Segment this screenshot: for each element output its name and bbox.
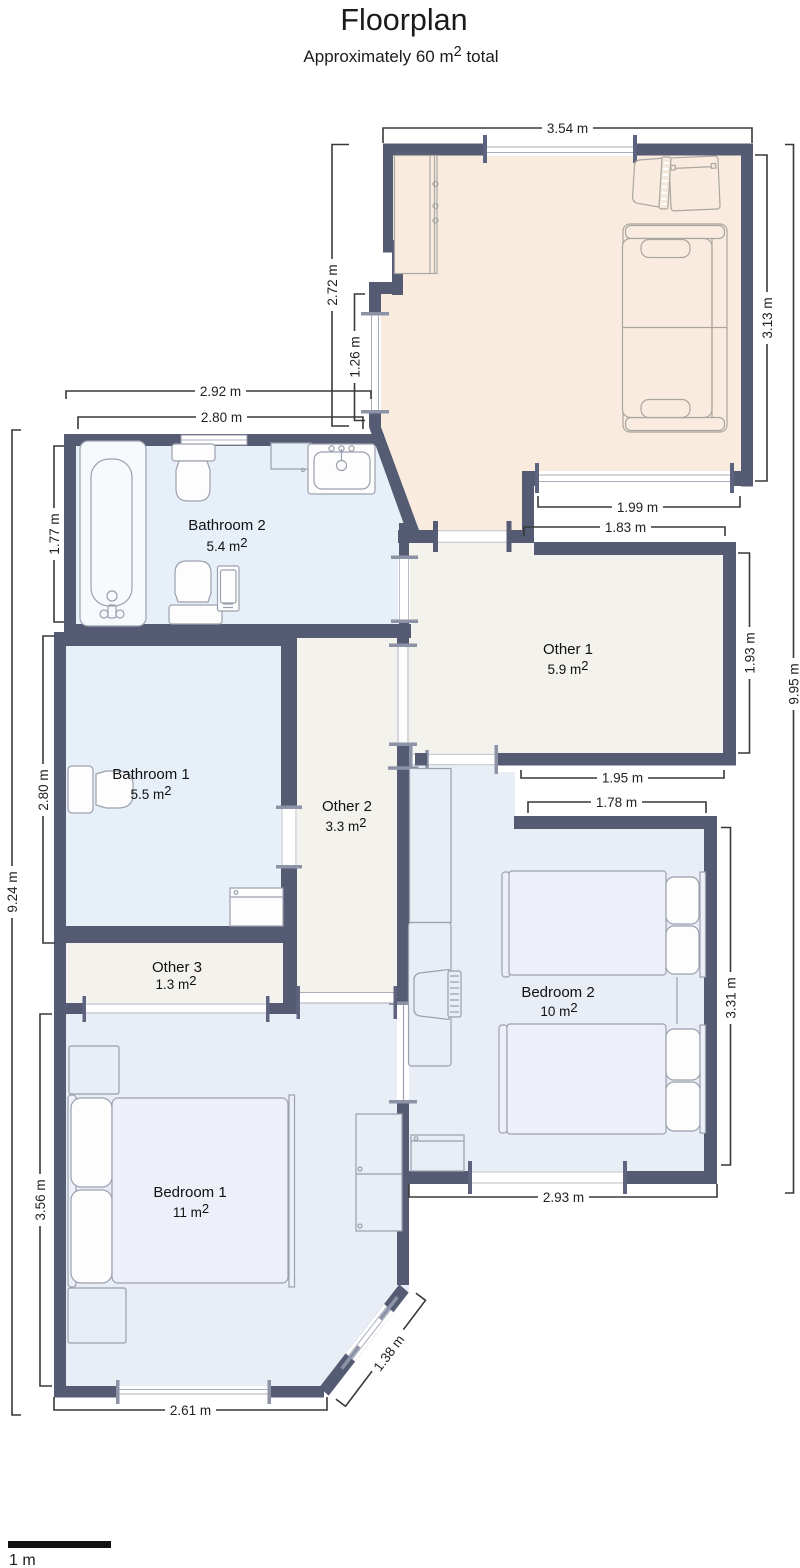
- svg-text:Bathroom 2: Bathroom 2: [188, 517, 266, 534]
- svg-text:Floorplan: Floorplan: [340, 3, 467, 37]
- svg-text:2.93 m: 2.93 m: [543, 1190, 584, 1205]
- svg-text:2.80 m: 2.80 m: [201, 410, 242, 425]
- svg-text:2.72 m: 2.72 m: [325, 264, 340, 305]
- svg-text:1.26 m: 1.26 m: [347, 336, 362, 377]
- svg-text:3.13 m: 3.13 m: [760, 297, 775, 338]
- svg-text:1.95 m: 1.95 m: [602, 771, 643, 786]
- svg-text:2.92 m: 2.92 m: [200, 384, 241, 399]
- svg-text:Other 2: Other 2: [322, 798, 372, 815]
- svg-text:9.24 m: 9.24 m: [5, 871, 20, 912]
- svg-text:2.61 m: 2.61 m: [170, 1403, 211, 1418]
- svg-text:1.83 m: 1.83 m: [605, 520, 646, 535]
- svg-text:2.80 m: 2.80 m: [36, 769, 51, 810]
- svg-text:1.77 m: 1.77 m: [47, 513, 62, 554]
- svg-text:Other 1: Other 1: [543, 641, 593, 658]
- svg-text:Approximately 60 m2 total: Approximately 60 m2 total: [303, 44, 498, 66]
- svg-text:1.78 m: 1.78 m: [596, 795, 637, 810]
- svg-text:Bathroom 1: Bathroom 1: [112, 766, 190, 783]
- svg-text:Bedroom 1: Bedroom 1: [153, 1184, 226, 1201]
- svg-text:3.56 m: 3.56 m: [33, 1179, 48, 1220]
- svg-text:3.31 m: 3.31 m: [723, 977, 738, 1018]
- svg-text:1.99 m: 1.99 m: [617, 500, 658, 515]
- svg-text:1 m: 1 m: [9, 1552, 36, 1568]
- svg-text:3.54 m: 3.54 m: [547, 121, 588, 136]
- svg-text:1.93 m: 1.93 m: [742, 632, 757, 673]
- svg-text:9.95 m: 9.95 m: [786, 663, 800, 704]
- svg-text:Bedroom 2: Bedroom 2: [521, 984, 594, 1001]
